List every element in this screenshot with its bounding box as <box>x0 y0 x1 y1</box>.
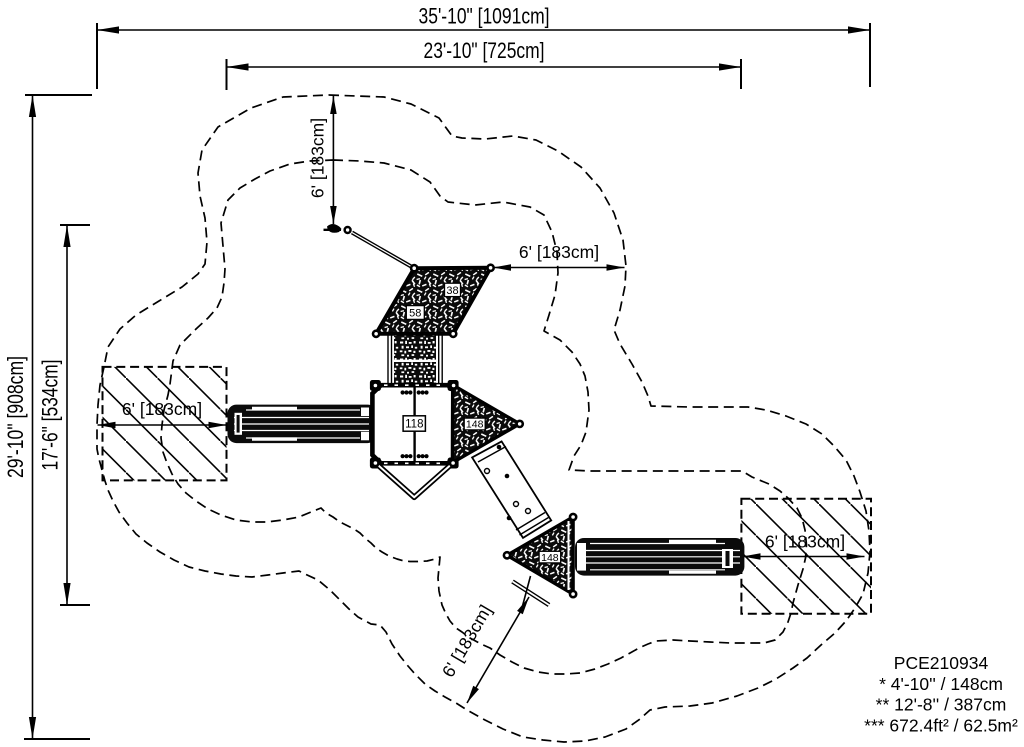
svg-text:58: 58 <box>409 307 421 319</box>
svg-text:PCE210934: PCE210934 <box>894 653 989 673</box>
svg-text:6' [183cm]: 6' [183cm] <box>308 118 328 198</box>
svg-text:6' [183cm]: 6' [183cm] <box>122 399 202 419</box>
svg-text:6' [183cm]: 6' [183cm] <box>765 532 845 552</box>
svg-text:23'-10" [725cm]: 23'-10" [725cm] <box>424 38 545 63</box>
svg-text:148: 148 <box>466 419 484 431</box>
svg-text:17'-6" [534cm]: 17'-6" [534cm] <box>38 360 63 471</box>
svg-text:29'-10" [908cm]: 29'-10" [908cm] <box>3 356 28 478</box>
svg-text:38: 38 <box>446 285 458 297</box>
svg-text:* 4'-10'' / 148cm: * 4'-10'' / 148cm <box>879 674 1003 694</box>
svg-text:** 12'-8'' / 387cm: ** 12'-8'' / 387cm <box>876 695 1007 715</box>
svg-text:148: 148 <box>541 552 559 564</box>
svg-text:118: 118 <box>405 419 423 431</box>
svg-text:6' [183cm]: 6' [183cm] <box>519 242 599 262</box>
svg-text:*** 672.4ft² / 62.5m²: *** 672.4ft² / 62.5m² <box>864 716 1018 736</box>
svg-text:35'-10" [1091cm]: 35'-10" [1091cm] <box>419 4 550 29</box>
